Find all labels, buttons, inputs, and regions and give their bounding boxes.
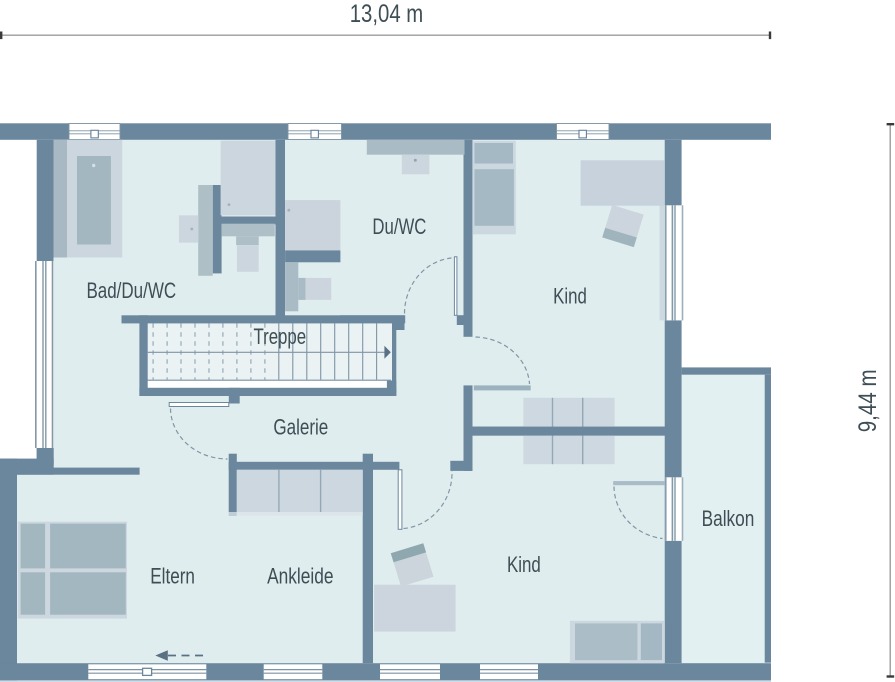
svg-text:Eltern: Eltern <box>150 564 195 589</box>
svg-text:Kind: Kind <box>553 284 587 309</box>
svg-text:13,04 m: 13,04 m <box>350 0 424 28</box>
svg-text:Ankleide: Ankleide <box>267 564 333 589</box>
svg-text:9,44 m: 9,44 m <box>854 369 882 432</box>
svg-text:Treppe: Treppe <box>253 324 306 349</box>
svg-text:Kind: Kind <box>507 552 541 577</box>
svg-text:Balkon: Balkon <box>702 506 755 531</box>
svg-text:Du/WC: Du/WC <box>372 214 426 239</box>
svg-text:Galerie: Galerie <box>273 415 328 440</box>
svg-text:Bad/Du/WC: Bad/Du/WC <box>86 278 176 303</box>
